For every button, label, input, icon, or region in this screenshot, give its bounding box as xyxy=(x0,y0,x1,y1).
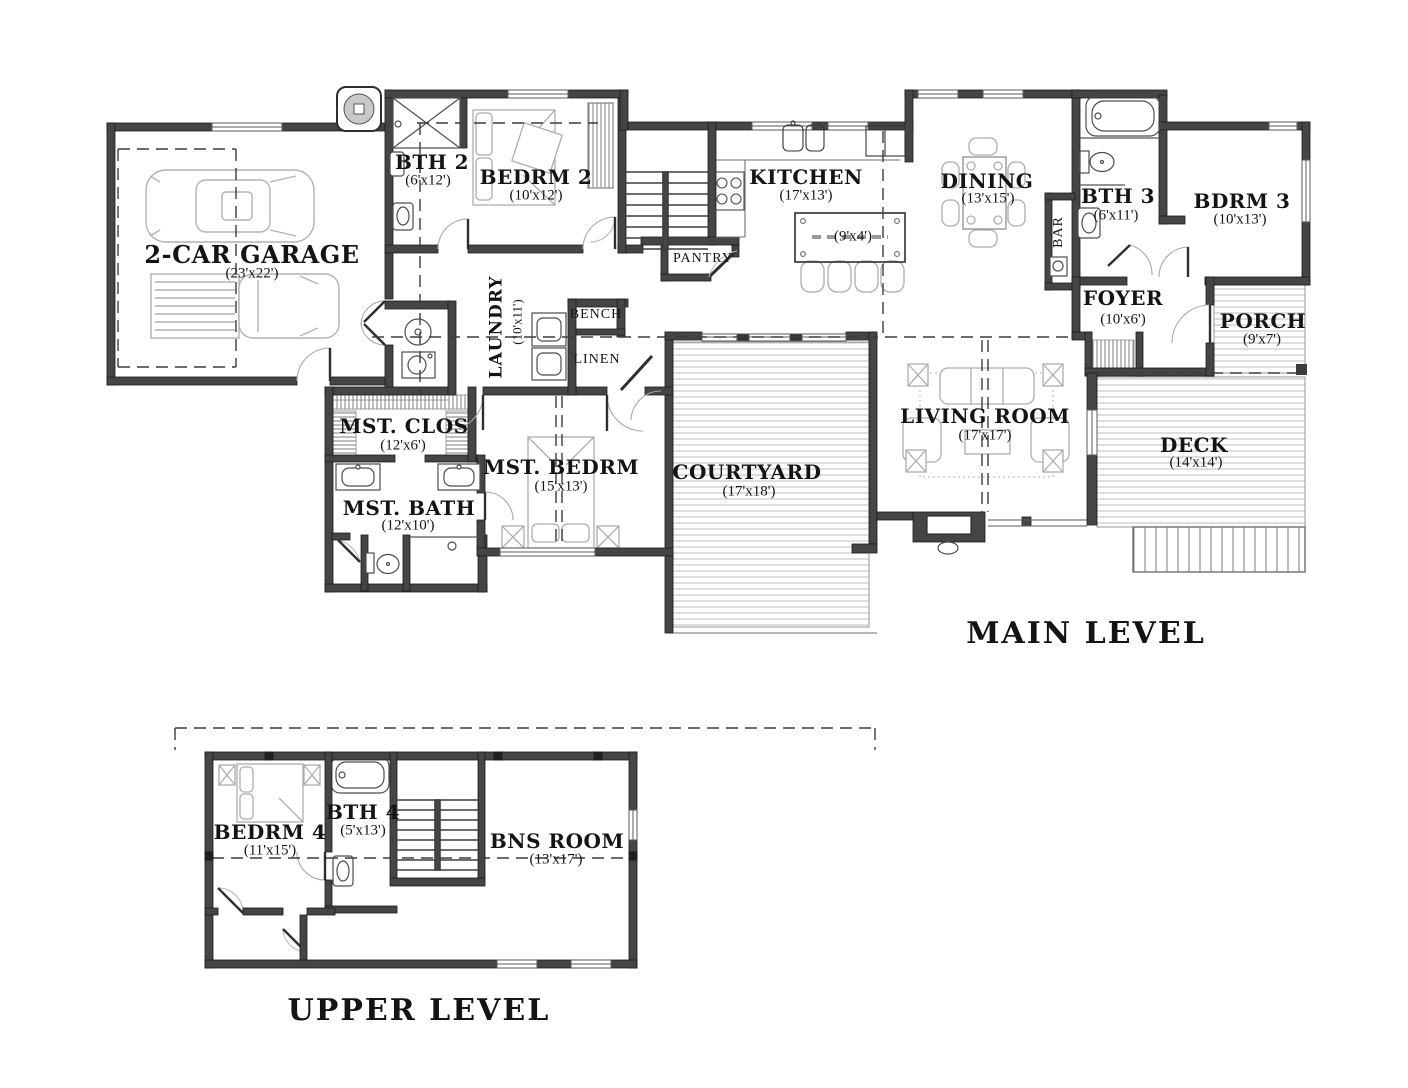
room-dims-bdrm3: (10'x13') xyxy=(1214,213,1267,228)
room-dims-foyer: (10'x6') xyxy=(1100,313,1145,328)
main-level-title: MAIN LEVEL xyxy=(966,619,1206,649)
room-label-linen: LINEN xyxy=(574,353,621,367)
room-label-dining: DINING xyxy=(941,171,1034,191)
deck-railing xyxy=(988,520,1087,526)
room-label-bedrm2: BEDRM 2 xyxy=(480,167,593,187)
room-dims-courtyard: (17'x18') xyxy=(723,485,776,500)
floor-plan-drawing xyxy=(0,0,1408,1088)
floor-plan: 2-CAR GARAGE (23'x22') BTH 2 (6'x12') BE… xyxy=(0,0,1408,1088)
room-label-bar: BAR xyxy=(1052,216,1066,248)
room-dims-laundry: (10'x11') xyxy=(511,299,524,344)
room-label-mst-bath: MST. BATH xyxy=(343,498,475,518)
ceiling-fixture-icon xyxy=(337,87,381,131)
upper-level-title: UPPER LEVEL xyxy=(288,996,551,1026)
room-dims-porch: (9'x7') xyxy=(1243,333,1281,348)
furniture xyxy=(219,103,1069,822)
island-dims: (9'x4') xyxy=(834,230,872,245)
main-stairs xyxy=(626,172,708,249)
room-label-bth3: BTH 3 xyxy=(1081,186,1155,206)
room-label-pantry: PANTRY xyxy=(673,252,733,266)
room-label-bedrm4: BEDRM 4 xyxy=(214,822,327,842)
room-label-porch: PORCH xyxy=(1220,311,1306,331)
room-dims-bedrm2: (10'x12') xyxy=(510,189,563,204)
room-label-courtyard: COURTYARD xyxy=(673,462,822,482)
room-label-deck: DECK xyxy=(1160,435,1228,455)
room-dims-kitchen: (17'x13') xyxy=(780,189,833,204)
room-dims-bth4: (5'x13') xyxy=(340,824,385,839)
room-label-bench: BENCH xyxy=(570,308,622,322)
room-label-bth4: BTH 4 xyxy=(326,802,400,822)
room-label-foyer: FOYER xyxy=(1083,288,1163,308)
room-dims-mst-bedrm: (15'x13') xyxy=(535,480,588,495)
room-label-mst-bedrm: MST. BEDRM xyxy=(483,457,639,477)
room-label-bth2: BTH 2 xyxy=(395,152,469,172)
room-label-garage: 2-CAR GARAGE xyxy=(144,243,359,267)
room-label-living: LIVING ROOM xyxy=(900,406,1070,426)
room-dims-dining: (13'x15') xyxy=(962,192,1015,207)
room-dims-bns: (13'x17') xyxy=(530,853,583,868)
room-dims-mst-bath: (12'x10') xyxy=(382,519,435,534)
room-label-mst-clos: MST. CLOS xyxy=(339,416,468,436)
room-dims-garage: (23'x22') xyxy=(226,267,279,282)
room-dims-bth2: (6'x12') xyxy=(405,174,450,189)
room-label-bdrm3: BDRM 3 xyxy=(1194,191,1291,211)
room-dims-bth3: (6'x11') xyxy=(1094,209,1139,224)
room-label-laundry: LAUNDRY xyxy=(489,276,506,379)
room-label-bns: BNS ROOM xyxy=(490,831,624,851)
upper-stairs xyxy=(397,800,478,870)
room-dims-bedrm4: (11'x15') xyxy=(244,844,296,859)
room-dims-mst-clos: (12'x6') xyxy=(380,439,425,454)
room-dims-living: (17'x17') xyxy=(959,429,1012,444)
room-label-kitchen: KITCHEN xyxy=(749,167,862,187)
room-dims-deck: (14'x14') xyxy=(1170,456,1223,471)
